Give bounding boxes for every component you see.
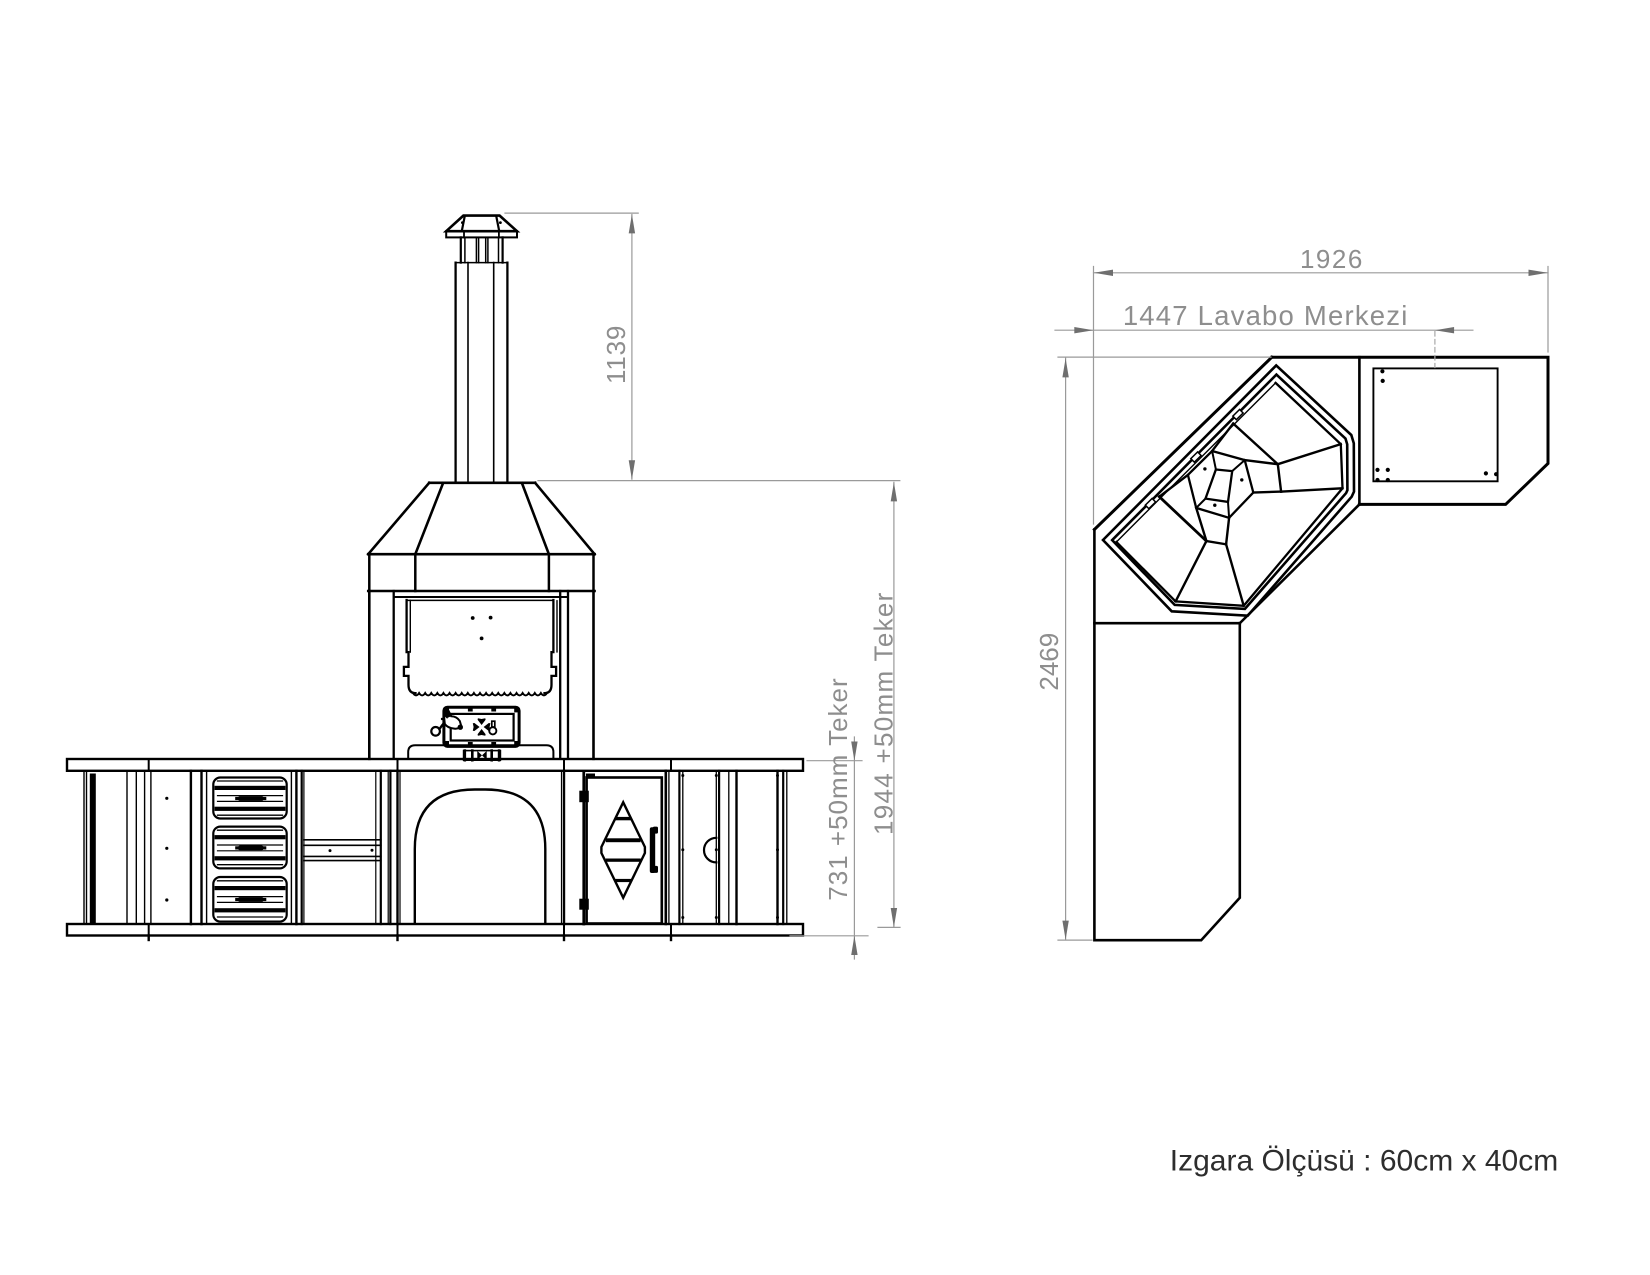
svg-text:2469: 2469 — [1034, 633, 1064, 691]
svg-text:1139: 1139 — [601, 325, 631, 384]
svg-text:Izgara Ölçüsü : 60cm x 40cm: Izgara Ölçüsü : 60cm x 40cm — [1170, 1144, 1558, 1177]
svg-text:1447 Lavabo Merkezi: 1447 Lavabo Merkezi — [1123, 300, 1409, 331]
svg-text:1926: 1926 — [1300, 244, 1364, 274]
svg-text:731 +50mm Teker: 731 +50mm Teker — [823, 677, 853, 900]
svg-text:1944 +50mm Teker: 1944 +50mm Teker — [869, 591, 899, 835]
